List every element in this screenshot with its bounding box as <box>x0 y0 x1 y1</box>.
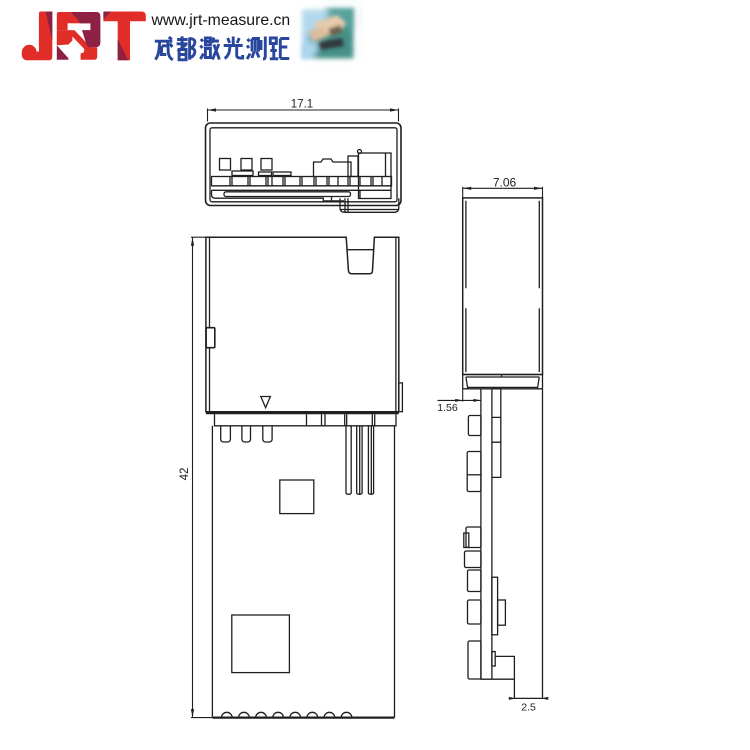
svg-text:42: 42 <box>179 468 191 481</box>
svg-text:1.56: 1.56 <box>437 402 458 414</box>
svg-text:17.1: 17.1 <box>291 99 313 111</box>
svg-text:2.5: 2.5 <box>521 702 536 714</box>
svg-text:7.06: 7.06 <box>493 176 517 190</box>
svg-text:www.jrt-measure.cn: www.jrt-measure.cn <box>151 12 291 29</box>
